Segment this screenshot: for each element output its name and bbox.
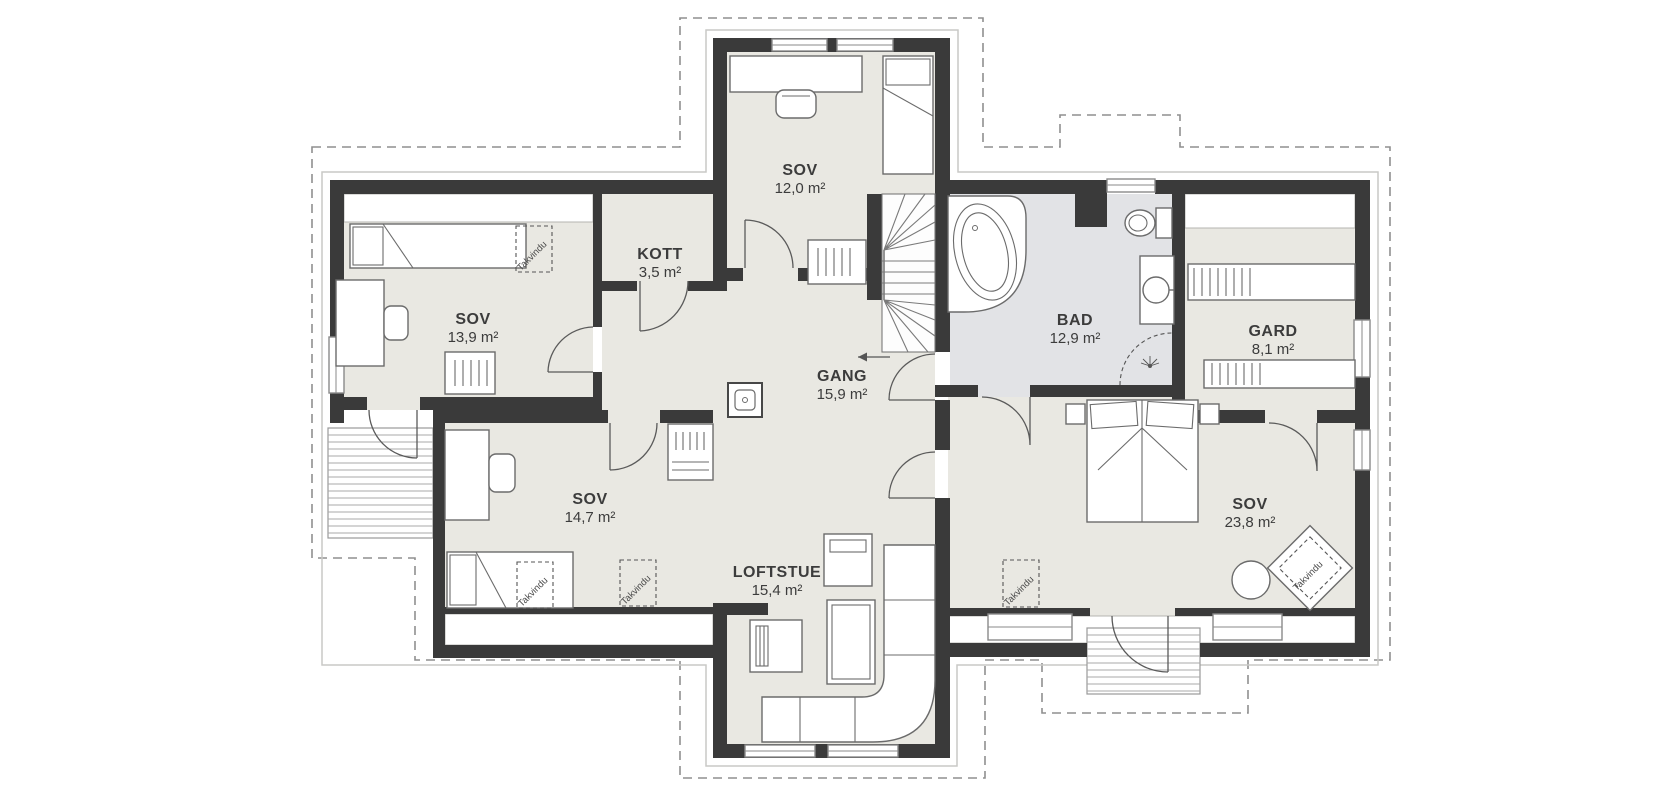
window: [1354, 320, 1370, 377]
floor-plan: Takvindu Takvindu Takvindu Takvindu Takv…: [0, 0, 1670, 800]
chair: [384, 306, 408, 340]
bed: [350, 224, 526, 268]
desk: [445, 430, 489, 520]
window: [1354, 430, 1370, 470]
room-label-gang: GANG: [817, 368, 867, 385]
room-area-sov-top: 12,0 m²: [775, 180, 826, 197]
desk: [730, 56, 862, 92]
room-area-gang: 15,9 m²: [817, 386, 868, 403]
toilet: [1125, 208, 1172, 238]
room-area-sov-mid-left: 14,7 m²: [565, 509, 616, 526]
tv-bench: [750, 620, 802, 672]
room-area-gard: 8,1 m²: [1252, 341, 1295, 358]
room-label-gard: GARD: [1248, 323, 1297, 340]
wardrobe: [668, 424, 713, 480]
window: [745, 745, 815, 757]
round-chair: [1232, 561, 1270, 599]
room-label-sov-top: SOV: [782, 162, 817, 179]
room-area-sov-right: 23,8 m²: [1225, 514, 1276, 531]
window: [772, 39, 827, 51]
room-label-sov-right: SOV: [1232, 496, 1267, 513]
window: [988, 614, 1072, 640]
wardrobe: [808, 240, 866, 284]
room-area-loftstue: 15,4 m²: [752, 582, 803, 599]
wardrobe-rail: [1188, 264, 1355, 300]
room-label-loftstue: LOFTSTUE: [733, 564, 821, 581]
bed: [447, 552, 573, 608]
window: [1107, 179, 1155, 192]
terrace-bottom-right: [1087, 628, 1200, 694]
room-area-kott: 3,5 m²: [639, 264, 682, 281]
chair: [776, 90, 816, 118]
room-label-kott: KOTT: [637, 246, 683, 263]
desk: [336, 280, 384, 366]
wardrobe: [445, 352, 495, 394]
coffee-table: [827, 600, 875, 684]
room-label-sov-mid-left: SOV: [572, 491, 607, 508]
armchair: [824, 534, 872, 586]
room-label-bad: BAD: [1057, 312, 1093, 329]
room-label-sov-left: SOV: [455, 311, 490, 328]
window: [837, 39, 893, 51]
nightstand: [1066, 404, 1085, 424]
nightstand: [1200, 404, 1219, 424]
double-bed: [1087, 400, 1198, 522]
room-area-bad: 12,9 m²: [1050, 330, 1101, 347]
bed: [883, 56, 933, 174]
sink: [1140, 256, 1174, 324]
wardrobe-rail: [1204, 360, 1355, 388]
window: [1213, 614, 1282, 640]
window: [828, 745, 898, 757]
chair: [489, 454, 515, 492]
chimney: [728, 383, 762, 417]
room-area-sov-left: 13,9 m²: [448, 329, 499, 346]
